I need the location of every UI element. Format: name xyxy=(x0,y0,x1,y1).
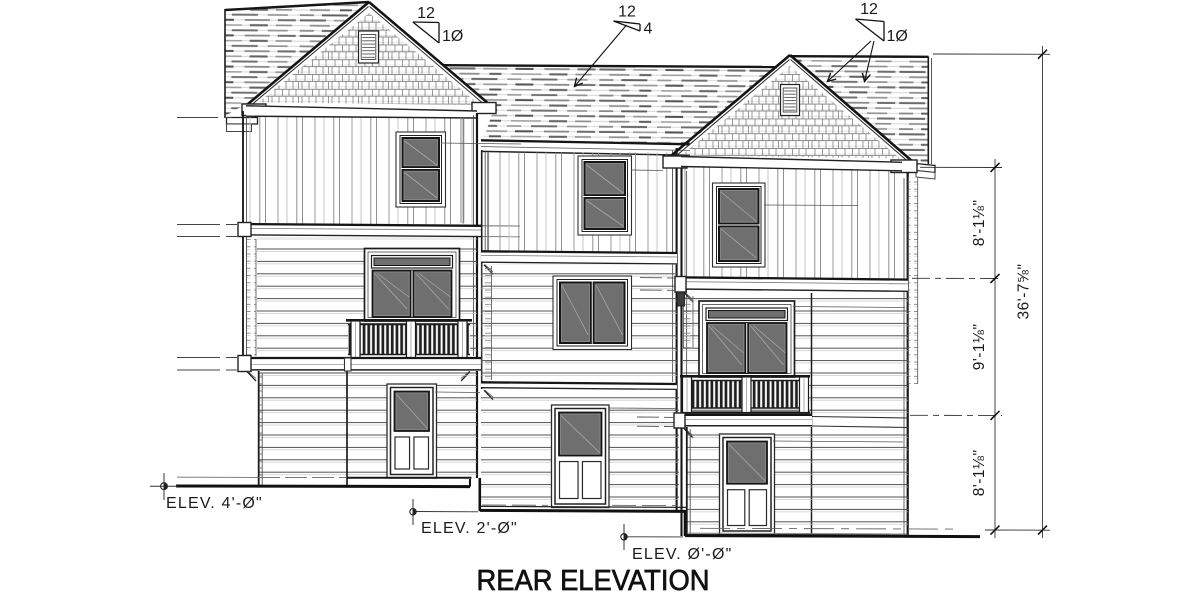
svg-text:36'-7⅝": 36'-7⅝" xyxy=(1016,264,1033,320)
svg-text:4: 4 xyxy=(644,21,653,38)
svg-text:1Ø: 1Ø xyxy=(442,28,463,45)
svg-text:12: 12 xyxy=(417,5,435,22)
svg-text:ELEV. 4'-Ø": ELEV. 4'-Ø" xyxy=(166,495,263,512)
svg-text:9'-1⅛": 9'-1⅛" xyxy=(971,324,988,371)
svg-text:12: 12 xyxy=(860,1,878,18)
svg-text:ELEV. Ø'-Ø": ELEV. Ø'-Ø" xyxy=(632,546,733,563)
svg-text:12: 12 xyxy=(618,4,636,21)
svg-text:1Ø: 1Ø xyxy=(887,28,908,45)
svg-text:8'-1⅛": 8'-1⅛" xyxy=(971,200,988,247)
svg-text:8'-1⅛": 8'-1⅛" xyxy=(971,450,988,497)
svg-text:REAR ELEVATION: REAR ELEVATION xyxy=(477,565,710,597)
svg-text:ELEV. 2'-Ø": ELEV. 2'-Ø" xyxy=(421,520,518,537)
